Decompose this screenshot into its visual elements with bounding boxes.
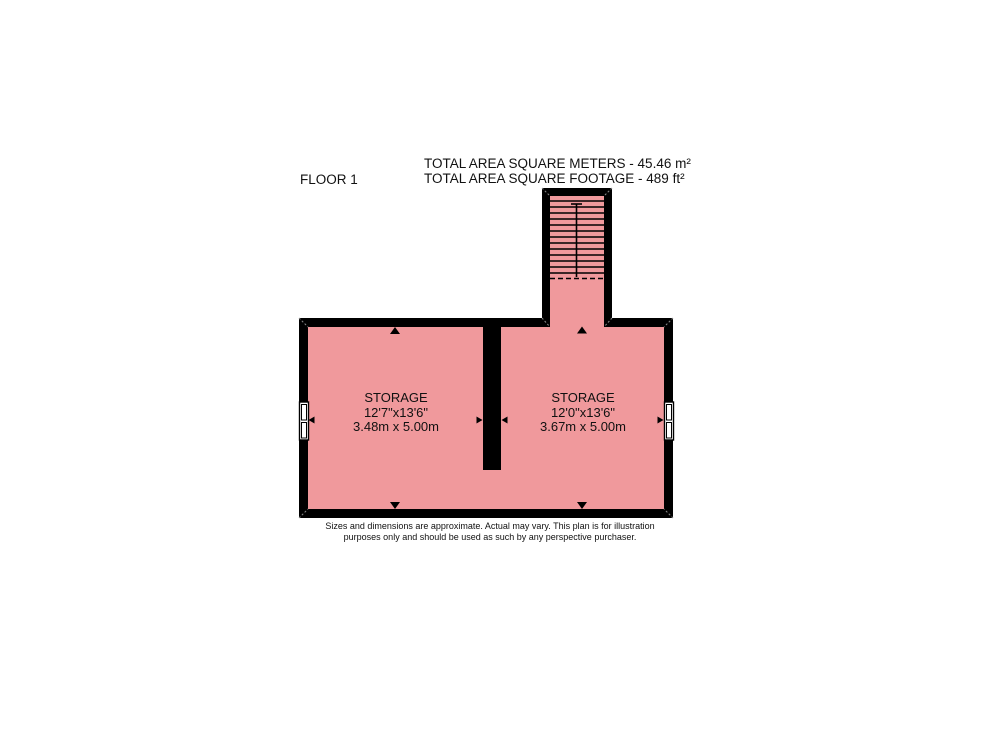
disclaimer-line1: Sizes and dimensions are approximate. Ac… bbox=[288, 521, 692, 532]
room-dimensions-metric: 3.67m x 5.00m bbox=[483, 420, 683, 435]
room-name: STORAGE bbox=[483, 391, 683, 406]
room-dimensions-metric: 3.48m x 5.00m bbox=[296, 420, 496, 435]
room-dimensions-imperial: 12'0"x13'6" bbox=[483, 406, 683, 421]
room-label-left-storage: STORAGE 12'7"x13'6" 3.48m x 5.00m bbox=[296, 391, 496, 435]
room-label-right-storage: STORAGE 12'0"x13'6" 3.67m x 5.00m bbox=[483, 391, 683, 435]
floor-plan-canvas bbox=[0, 0, 1000, 737]
room-dimensions-imperial: 12'7"x13'6" bbox=[296, 406, 496, 421]
disclaimer: Sizes and dimensions are approximate. Ac… bbox=[288, 521, 692, 543]
disclaimer-line2: purposes only and should be used as such… bbox=[288, 532, 692, 543]
room-name: STORAGE bbox=[296, 391, 496, 406]
